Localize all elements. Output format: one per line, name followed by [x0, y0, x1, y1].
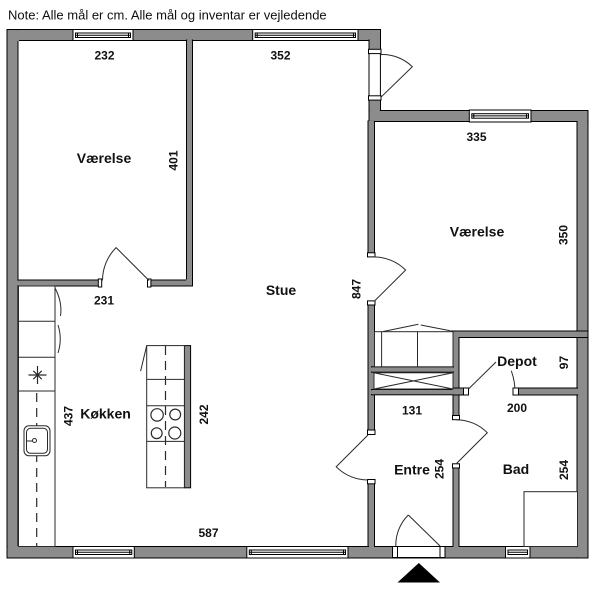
- svg-text:Entre: Entre: [394, 462, 430, 478]
- svg-text:401: 401: [167, 150, 181, 170]
- svg-text:232: 232: [94, 48, 114, 62]
- svg-text:350: 350: [557, 225, 571, 245]
- svg-text:Værelse: Værelse: [77, 150, 132, 166]
- svg-text:Køkken: Køkken: [80, 406, 131, 422]
- svg-text:847: 847: [350, 279, 364, 299]
- svg-text:242: 242: [197, 404, 211, 424]
- svg-text:Depot: Depot: [497, 353, 537, 369]
- svg-text:587: 587: [198, 526, 218, 540]
- svg-text:200: 200: [507, 401, 527, 415]
- svg-text:231: 231: [94, 294, 114, 308]
- svg-text:437: 437: [62, 406, 76, 426]
- svg-text:131: 131: [402, 404, 422, 418]
- svg-text:352: 352: [270, 49, 290, 63]
- svg-text:Note: Alle mål er cm. Alle mål: Note: Alle mål er cm. Alle mål og invent…: [8, 8, 327, 23]
- svg-text:254: 254: [433, 459, 447, 479]
- svg-text:254: 254: [557, 460, 571, 480]
- svg-text:Værelse: Værelse: [450, 224, 505, 240]
- svg-text:Bad: Bad: [503, 461, 529, 477]
- svg-text:97: 97: [557, 356, 571, 370]
- svg-text:335: 335: [466, 130, 486, 144]
- svg-text:Stue: Stue: [266, 282, 297, 298]
